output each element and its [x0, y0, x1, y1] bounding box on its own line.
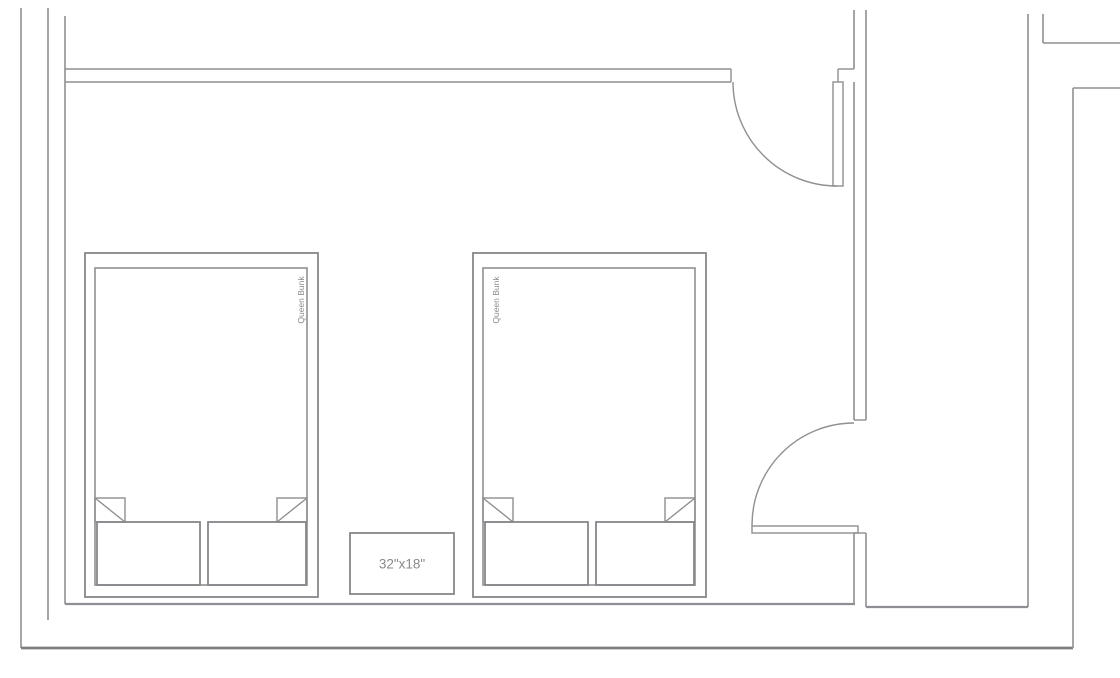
bed2-pillow-right	[596, 522, 694, 585]
bed1-fold-diagonal-left	[95, 498, 125, 522]
nightstand-label: 32"x18"	[379, 557, 426, 572]
bed1-fold-diagonal-right	[277, 498, 307, 522]
bed1-pillow-right	[208, 522, 306, 585]
door2-swing-arc	[752, 423, 854, 526]
bed2-fold-diagonal-left	[483, 498, 513, 522]
bed1-label: Queen Bunk	[296, 276, 306, 324]
bed2-pillow-left	[485, 522, 588, 585]
bed1-pillow-left	[97, 522, 200, 585]
bed2-mattress	[483, 268, 695, 585]
bed2-frame	[473, 253, 706, 597]
bed2-fold-diagonal-right	[665, 498, 695, 522]
door1-swing-arc	[733, 82, 837, 186]
floor-plan-drawing: Queen BunkQueen Bunk32"x18"	[0, 0, 1120, 678]
floor-plan-canvas: Queen BunkQueen Bunk32"x18"	[0, 0, 1120, 678]
bed1-mattress	[95, 268, 307, 585]
bed1-frame	[85, 253, 318, 597]
door1-leaf	[833, 82, 843, 186]
door2-leaf	[752, 526, 858, 533]
bed2-label: Queen Bunk	[491, 276, 501, 324]
